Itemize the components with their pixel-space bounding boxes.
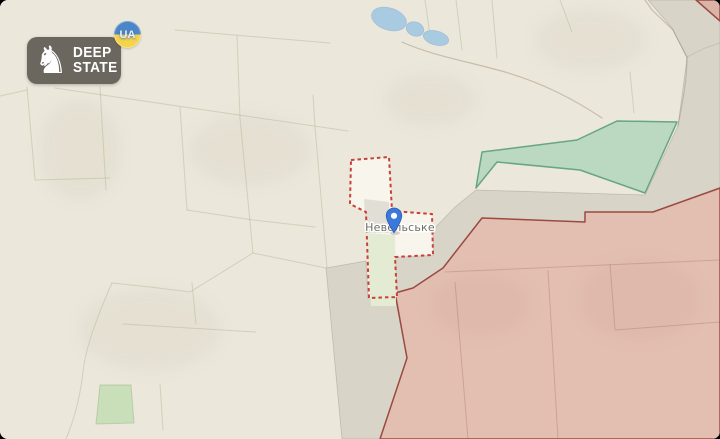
vegetation-patch — [96, 385, 134, 424]
deepstate-map-view[interactable]: Невельське ♞ DEEP STATE UA — [0, 0, 720, 439]
chess-knight-icon: ♞ — [34, 41, 68, 79]
logo-title: DEEP STATE — [73, 46, 118, 76]
ua-badge-label: UA — [120, 29, 136, 41]
ua-badge: UA — [114, 21, 141, 48]
deepstate-logo: ♞ DEEP STATE — [27, 37, 121, 84]
settlement-green-patch — [366, 233, 396, 306]
logo-title-line2: STATE — [73, 61, 118, 76]
logo-title-line1: DEEP — [73, 46, 118, 61]
